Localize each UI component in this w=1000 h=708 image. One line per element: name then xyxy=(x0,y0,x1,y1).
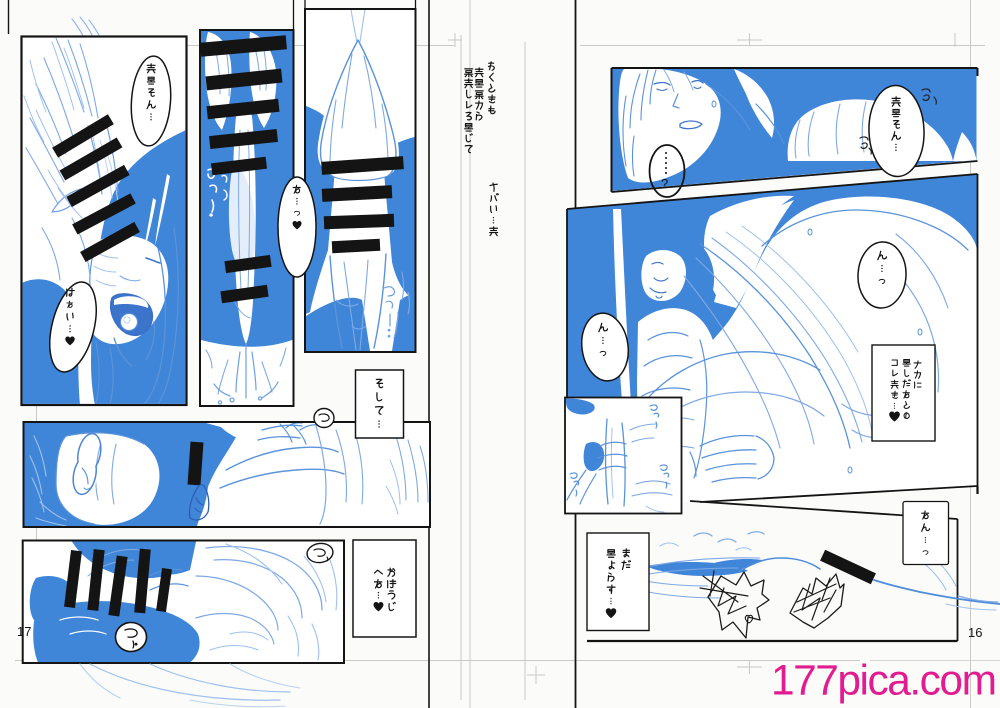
svg-text:?: ? xyxy=(661,176,668,191)
svg-text:17: 17 xyxy=(17,624,31,639)
svg-text:16: 16 xyxy=(968,625,982,640)
svg-text:177pica.com: 177pica.com xyxy=(771,658,995,705)
